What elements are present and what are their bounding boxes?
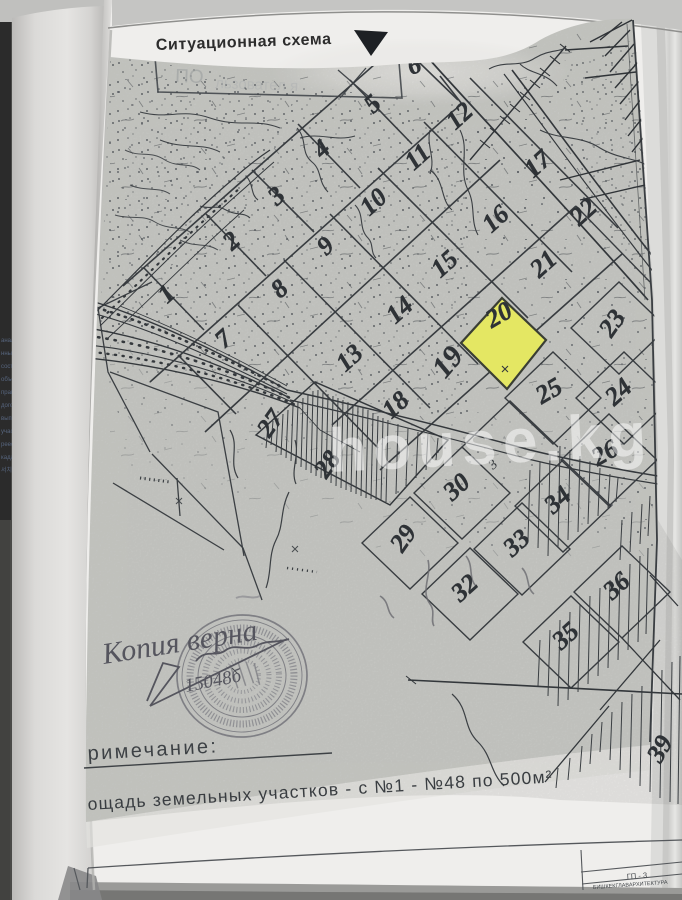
svg-text:льзовател я: льзовател я	[215, 75, 299, 95]
svg-text:서치: 서치	[1, 466, 12, 474]
svg-text:ПО: ПО	[175, 66, 204, 88]
svg-text:ГП - 3: ГП - 3	[627, 871, 648, 881]
